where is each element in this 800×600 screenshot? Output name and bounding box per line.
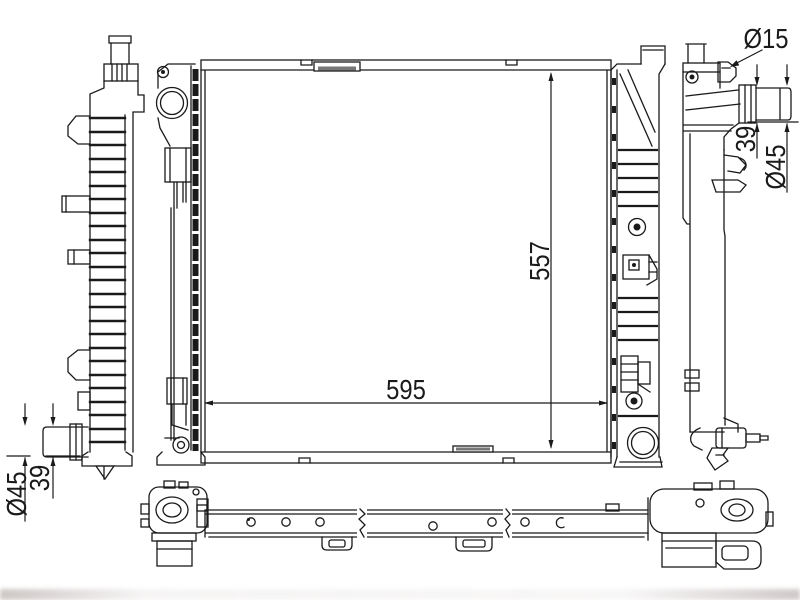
radiator-line-art	[0, 0, 800, 600]
dim-label-inlet-stub-length: 39	[732, 126, 760, 152]
left-tank-side-view	[43, 36, 144, 479]
dim-label-outlet-diameter: Ø45	[3, 472, 31, 517]
right-tank-edge-view	[611, 46, 665, 467]
outlet-pipe	[43, 427, 88, 457]
left-tank-edge-view	[157, 64, 206, 465]
drain-plug	[746, 434, 760, 442]
bottom-view	[141, 481, 773, 569]
dim-label-core-height: 557	[526, 241, 554, 281]
bottom-crossbeam	[197, 504, 648, 551]
dim-label-inlet-diameter: Ø45	[762, 145, 790, 190]
scan-artifact	[0, 589, 800, 600]
radiator-drawing-canvas: Ø15 39 Ø45 557 595 39 Ø45	[0, 0, 800, 600]
right-tank-side-view	[683, 44, 791, 470]
inlet-pipe	[756, 88, 791, 120]
bottom-right-mount	[648, 481, 773, 569]
dim-label-fitting-diameter: Ø15	[744, 25, 789, 53]
dim-label-core-width: 595	[386, 376, 426, 404]
inlet-flange	[739, 85, 756, 123]
bottom-left-mount	[141, 481, 208, 566]
